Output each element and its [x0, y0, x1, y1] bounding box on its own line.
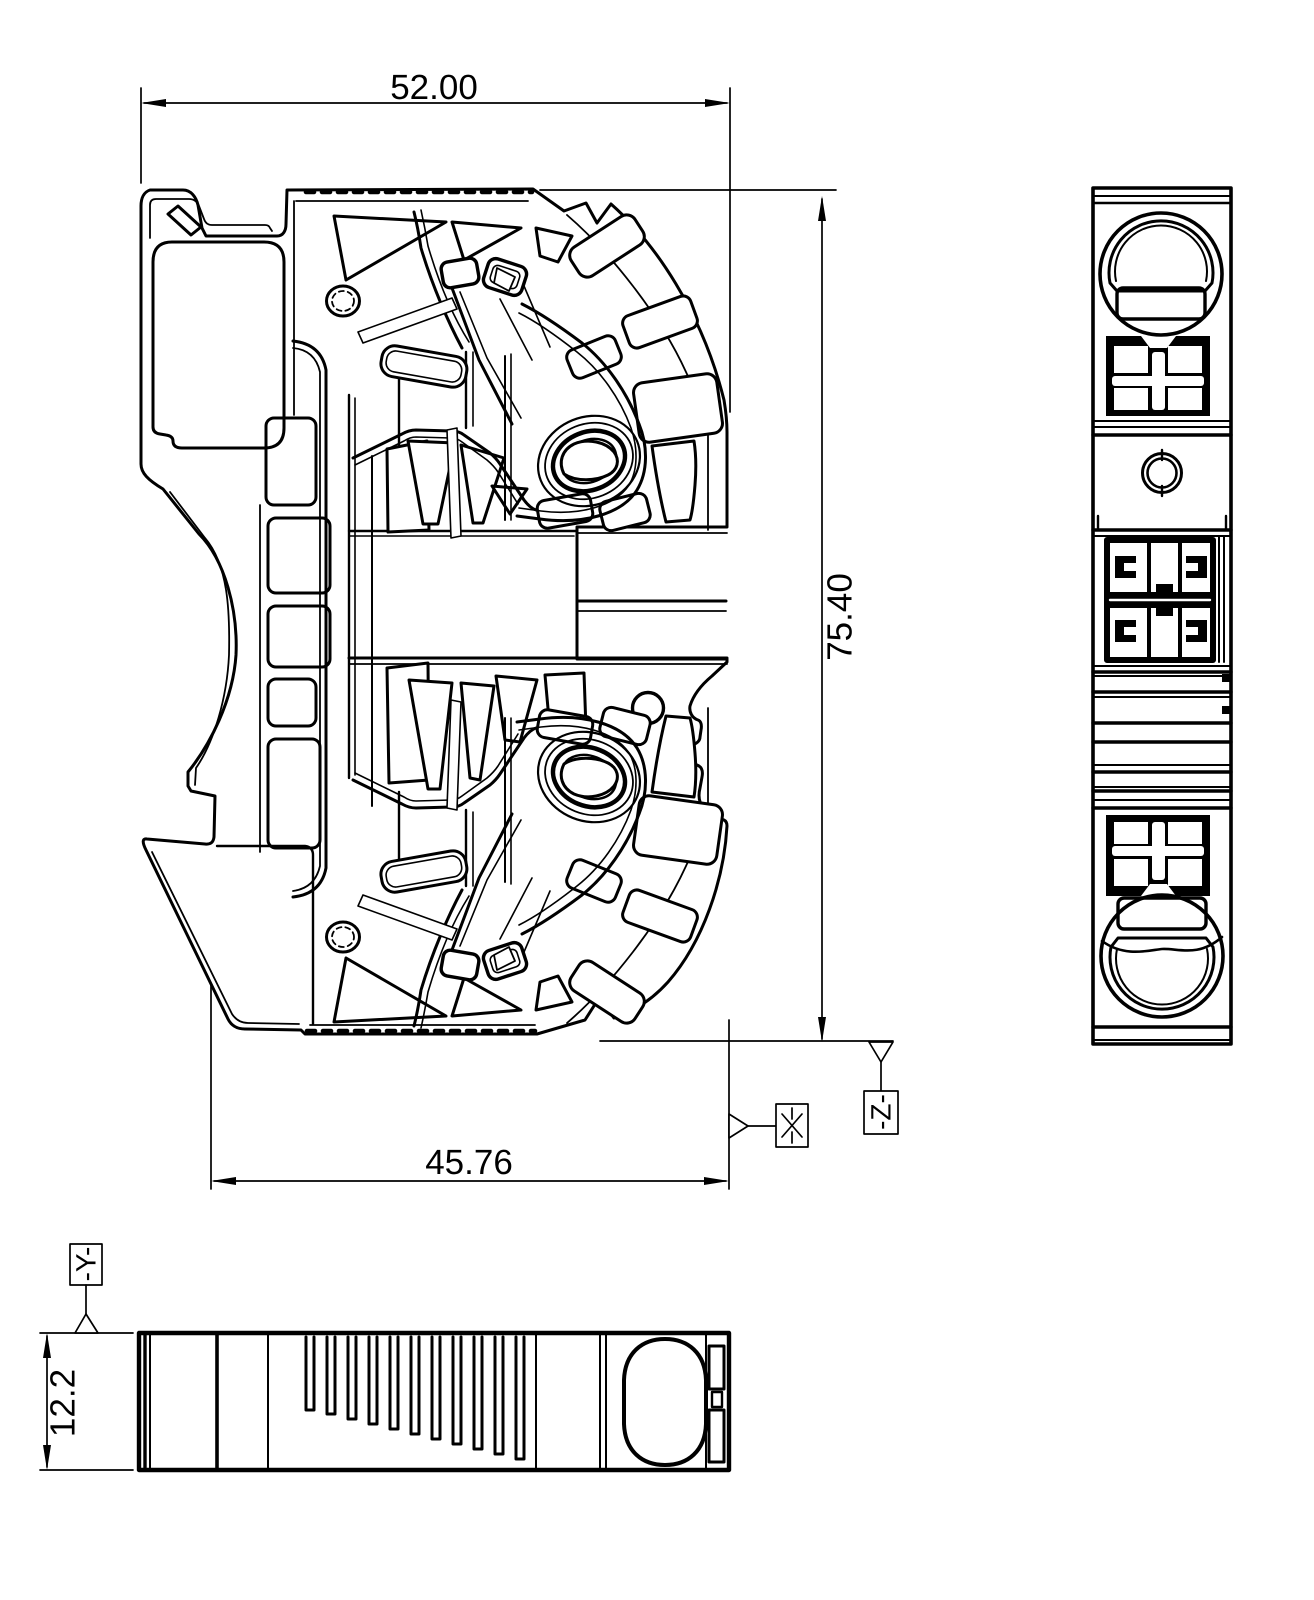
svg-text:12.2: 12.2	[44, 1369, 83, 1437]
svg-text:75.40: 75.40	[821, 573, 860, 661]
svg-text:-Z-: -Z-	[866, 1094, 897, 1130]
svg-text:-Y-: -Y-	[71, 1247, 102, 1282]
svg-text:45.76: 45.76	[425, 1143, 513, 1182]
svg-text:52.00: 52.00	[390, 68, 478, 107]
